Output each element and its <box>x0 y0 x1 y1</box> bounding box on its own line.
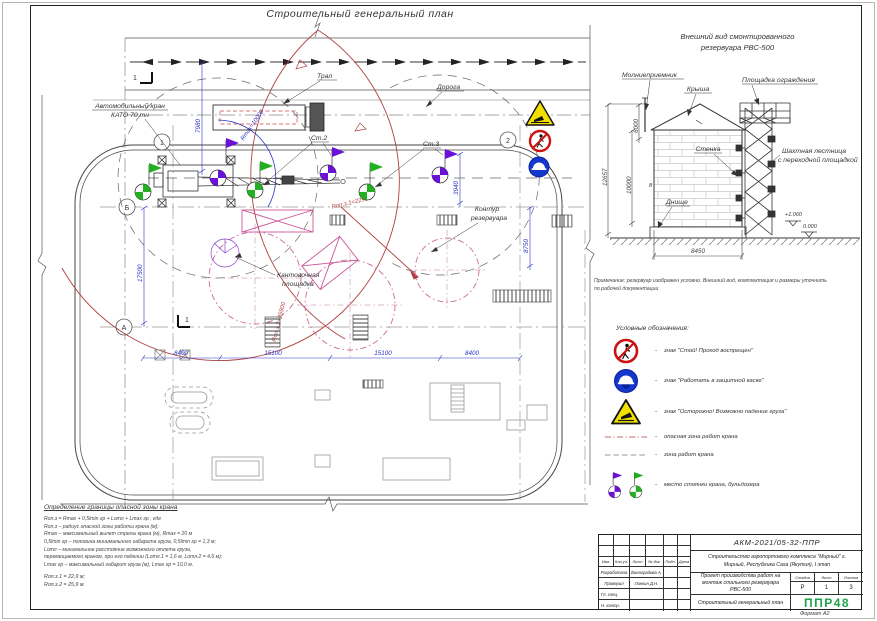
dim-6000: 6000 <box>633 118 640 133</box>
section-mark-label-bottom: 1 <box>185 317 189 324</box>
ladder-tower <box>736 103 790 235</box>
no-entry-sign-icon <box>604 338 648 364</box>
legend-label: место стоянки крана, бульдозера <box>664 482 862 488</box>
level-zero-label: 0.000 <box>803 224 818 230</box>
legend-label: знак "Работать в защитной каске" <box>664 378 862 384</box>
legend-dash: - <box>648 348 664 354</box>
dim-7980: 7980 <box>195 118 202 133</box>
dim-17500: 17500 <box>137 264 144 282</box>
sheets-label: Листов <box>839 573 863 582</box>
legend-item-no-entry: - знак "Стой! Проход воспрещен" <box>604 336 862 366</box>
stamp-name: Линкин Д.Н. <box>630 578 664 589</box>
tilting-area-label-1: Кантовочная <box>277 272 320 279</box>
stage-value: Р <box>791 582 815 595</box>
danger-zone-definition: Определение границы опасной зоны крана R… <box>44 504 354 590</box>
note-line1: Примечание: резервуар изображен условно.… <box>594 277 862 285</box>
buildings <box>155 350 547 480</box>
danger-zone-title: Определение границы опасной зоны крана <box>44 504 354 511</box>
legend-label: опасная зона работ крана <box>664 434 862 440</box>
cut-borders <box>38 25 594 511</box>
sheet-value: 1 <box>815 582 839 595</box>
stage-label: Стадия <box>791 573 815 582</box>
st2-label: Ст.2 <box>311 135 327 142</box>
legend-item-work-zone: - зона работ крана <box>604 446 862 464</box>
lightning-rod-label: Молниеприемник <box>622 72 678 79</box>
result-line: Rоп.з.1 = 22,9 м; <box>44 574 354 582</box>
note-line2: по рабочей документации <box>594 285 862 293</box>
elevation-note: Примечание: резервуар изображен условно.… <box>594 277 862 294</box>
legend-dash: - <box>648 434 664 440</box>
legend-item-helmet: - знак "Работать в защитной каске" <box>604 366 862 396</box>
crane-label-line1: Автомобильный кран <box>94 102 165 110</box>
dim-12657: 12657 <box>602 168 609 186</box>
stamp-col-izm: Изм. <box>599 557 614 567</box>
legend-label: знак "Осторожно! Возможно падение груза" <box>664 409 862 415</box>
stairs <box>451 385 464 412</box>
legend-item-stands: - место стоянки крана, бульдозера <box>604 464 862 506</box>
tank-body <box>642 98 746 238</box>
warning-sign-icon <box>604 398 648 426</box>
tilting-area-label-2: площадка <box>282 280 314 288</box>
axis-grid <box>100 125 585 500</box>
legend-item-falling-load: - знак "Осторожно! Возможно падение груз… <box>604 396 862 428</box>
wall-mark-8: 8 <box>649 183 653 189</box>
work-title: Проект производства работ на монтаж стал… <box>691 573 791 595</box>
ground <box>610 238 860 245</box>
formula-line: Lmax гр – максимальный габарит груза (м)… <box>44 562 354 570</box>
legend-dash: - <box>648 409 664 415</box>
sheet-label: Лист <box>815 573 839 582</box>
level-high-label: +1.060 <box>785 212 803 218</box>
crane-stand-symbols <box>604 465 648 505</box>
formula-line: Lотл – минимальное расстояние возможного… <box>44 547 354 555</box>
formula-line: Rmax – максимальный вылет стрелы крана (… <box>44 531 354 539</box>
drawing-sheet: Строительный генеральный план <box>0 0 877 621</box>
dim-10000: 10000 <box>626 176 633 194</box>
trailer-label: Трал <box>317 73 332 80</box>
danger-zone-line-sample <box>604 433 648 441</box>
plan-signs <box>526 101 554 177</box>
site-plan: 1 2 Б А 1 1 <box>30 5 670 565</box>
trailer <box>213 103 324 131</box>
axis-bubble-2: 2 <box>506 138 510 145</box>
work-zone-line-sample <box>604 451 648 459</box>
dim-8450: 8450 <box>691 248 706 255</box>
formula-line: 0,5lmin гр – половина минимального габар… <box>44 539 354 547</box>
stamp-col-dok: № док. <box>646 557 664 567</box>
tank-contour-label-2: резервуара <box>470 215 507 222</box>
dim-8400-a: 8400 <box>174 350 189 357</box>
tank-contour-label-1: Контур <box>475 206 499 213</box>
legend-dash: - <box>648 482 664 488</box>
elevation-title: Внешний вид смонтированного резервуара Р… <box>640 31 835 54</box>
bottom-label: Днище <box>665 199 688 206</box>
stamp-col-list: Лист <box>630 557 646 567</box>
legend-label: зона работ крана <box>664 452 862 458</box>
roof-label: Крыша <box>687 86 709 93</box>
document-number: АКМ-2021/05-32-ППР <box>691 535 863 551</box>
road-label: Дорога <box>436 84 460 91</box>
legend-dash: - <box>648 452 664 458</box>
dim-8750: 8750 <box>523 238 530 253</box>
legend-item-danger-zone: - опасная зона работ крана <box>604 428 862 446</box>
crane-work-zone <box>118 75 572 278</box>
dim-8400-b: 8400 <box>465 350 480 357</box>
stamp-col-koluch: Кол.уч. <box>614 557 630 567</box>
result-line: Rоп.з.2 = 25,9 м. <box>44 582 354 590</box>
rmax-label: Rmax=10000 <box>240 109 266 142</box>
helmet-sign-icon <box>529 157 549 177</box>
section-mark-label-top: 1 <box>133 75 137 82</box>
no-entry-sign-icon <box>530 131 550 151</box>
crane <box>154 156 345 207</box>
stamp-role: Разработала <box>599 567 630 578</box>
stamp-role: Гл. спец. <box>599 589 630 600</box>
wall-label: Стенка <box>695 146 720 153</box>
axis-bubbles: 1 2 Б А <box>116 132 516 335</box>
stamp-col-podp: Подп. <box>664 557 678 567</box>
platform-label: Площадка ограждения <box>742 76 815 84</box>
helmet-sign-icon <box>604 368 648 394</box>
legend-dash: - <box>648 378 664 384</box>
legend-title: Условные обозначения: <box>616 325 862 332</box>
stamp-name: Виноградова А. <box>630 567 664 578</box>
dim-15100-a: 15100 <box>264 350 282 357</box>
project-name: Строительство аэропортового комплекса "М… <box>691 551 863 573</box>
stamp-role: Проверил <box>599 578 630 589</box>
formula-line: Rоп.з = Rmax + 0,5lmin гр + Lотл + Lmax … <box>44 516 354 524</box>
elevation-title-line1: Внешний вид смонтированного <box>640 31 835 42</box>
sheets-value: 3 <box>839 582 863 595</box>
dim-3940: 3940 <box>453 180 460 195</box>
elevation-title-line2: резервуара РВС-500 <box>640 42 835 53</box>
st3-label: Ст.3 <box>423 141 439 148</box>
swing-circle <box>211 239 239 267</box>
ladder-label-line2: с переходной площадкой <box>778 156 858 164</box>
dim-15100-b: 15100 <box>374 350 392 357</box>
stand-crane-green <box>135 163 162 200</box>
road <box>93 38 590 505</box>
legend-label: знак "Стой! Проход воспрещен" <box>664 348 862 354</box>
stand-st2-purple <box>320 147 345 181</box>
company-logo: ППР48 <box>791 595 863 611</box>
ladder-label-line1: Шахтная лестница <box>782 148 846 155</box>
axis-bubble-a: А <box>122 325 127 332</box>
formula-line: перемещаемого краном, при его падении (L… <box>44 554 354 562</box>
legend: Условные обозначения: - знак "Стой! Прох… <box>604 325 862 506</box>
title-block: Изм. Кол.уч. Лист № док. Подп. Дата Разр… <box>598 534 862 610</box>
stamp-role: Н. контр. <box>599 600 630 611</box>
format-label: Формат А2 <box>800 611 830 617</box>
tank-elevation: 12657 10000 6000 8450 +1.060 0.000 Молни… <box>592 58 864 298</box>
crane-label-line2: КАТО 70 тн <box>111 112 149 119</box>
sheet-title: Строительный генеральный план <box>691 595 791 611</box>
warning-sign-icon <box>526 101 554 125</box>
stand-st3-green <box>359 162 383 200</box>
stamp-col-data: Дата <box>678 557 691 567</box>
axis-bubble-b: Б <box>125 205 130 212</box>
